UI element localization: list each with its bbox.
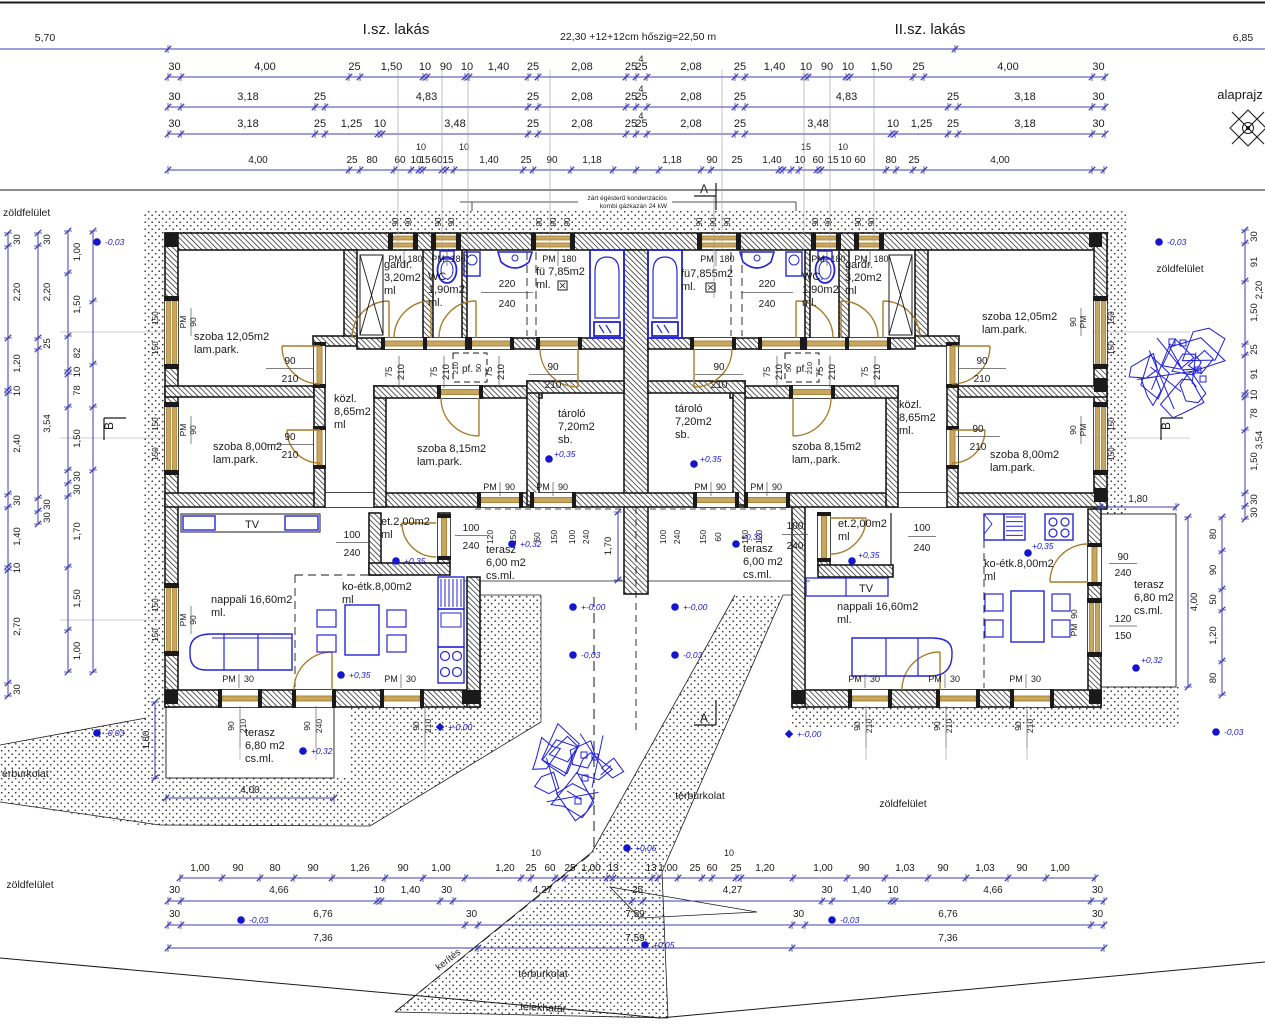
svg-text:60: 60: [713, 532, 723, 542]
svg-text:+0,35: +0,35: [858, 550, 880, 560]
svg-text:30: 30: [42, 499, 53, 510]
svg-text:180: 180: [719, 254, 734, 264]
svg-text:30: 30: [870, 674, 880, 684]
svg-text:25: 25: [42, 338, 53, 349]
svg-text:25: 25: [1249, 344, 1260, 355]
svg-text:30: 30: [12, 495, 23, 506]
svg-text:4,83: 4,83: [416, 91, 437, 103]
svg-text:90: 90: [434, 217, 443, 226]
svg-text:szoba 8,00m2: szoba 8,00m2: [213, 441, 282, 453]
svg-text:25: 25: [527, 61, 539, 73]
svg-text:4,27: 4,27: [533, 885, 553, 896]
svg-text:1,70: 1,70: [603, 537, 614, 556]
svg-text:25: 25: [730, 863, 742, 874]
svg-text:1,50: 1,50: [1249, 303, 1260, 322]
svg-text:1,00: 1,00: [190, 863, 210, 874]
svg-text:WC.: WC.: [802, 271, 823, 283]
svg-text:25: 25: [734, 91, 746, 103]
svg-text:4,00: 4,00: [997, 61, 1018, 73]
svg-text:zöldfelület: zöldfelület: [879, 798, 926, 810]
svg-text:90: 90: [1117, 552, 1129, 563]
svg-text:90: 90: [821, 61, 833, 73]
svg-text:-0,03: -0,03: [840, 915, 860, 925]
svg-text:I.sz. lakás: I.sz. lakás: [363, 21, 430, 38]
svg-text:ml: ml: [845, 285, 857, 297]
svg-text:cs.ml.: cs.ml.: [1134, 605, 1163, 617]
svg-text:PM: PM: [542, 254, 556, 264]
svg-text:13: 13: [645, 863, 657, 874]
svg-text:15: 15: [827, 155, 839, 166]
svg-text:100: 100: [567, 530, 577, 544]
svg-text:25: 25: [947, 91, 959, 103]
svg-text:ml: ml: [334, 419, 346, 431]
svg-text:ko-étk.8,00m2: ko-étk.8,00m2: [342, 581, 412, 593]
svg-text:10: 10: [12, 563, 23, 574]
svg-text:240: 240: [787, 541, 804, 552]
svg-text:ml.: ml.: [802, 297, 817, 309]
svg-text:75: 75: [815, 367, 826, 378]
svg-text:30: 30: [42, 234, 53, 245]
svg-text:90: 90: [226, 721, 236, 731]
svg-text:90: 90: [972, 424, 984, 435]
svg-text:90: 90: [824, 217, 833, 226]
svg-text:+0,05: +0,05: [635, 843, 657, 853]
svg-text:25: 25: [527, 118, 539, 130]
svg-text:PM: PM: [1009, 674, 1023, 684]
svg-text:2,20: 2,20: [12, 283, 23, 302]
svg-text:1,20: 1,20: [12, 354, 23, 373]
svg-text:30: 30: [821, 885, 833, 896]
svg-text:90: 90: [858, 863, 870, 874]
svg-text:90: 90: [549, 217, 558, 226]
svg-text:210: 210: [864, 719, 874, 733]
svg-text:25: 25: [912, 61, 924, 73]
svg-text:1,40: 1,40: [12, 527, 23, 546]
svg-text:+-0,00: +-0,00: [797, 729, 822, 739]
svg-text:1,00: 1,00: [581, 863, 601, 874]
svg-text:210: 210: [974, 374, 991, 385]
svg-text:tároló: tároló: [558, 408, 586, 420]
svg-text:30: 30: [42, 512, 53, 523]
svg-text:cs.ml.: cs.ml.: [486, 570, 515, 582]
svg-text:1,00: 1,00: [658, 863, 678, 874]
svg-text:+-0,00: +-0,00: [581, 602, 606, 612]
svg-text:90: 90: [391, 217, 400, 226]
svg-text:A: A: [700, 711, 708, 725]
svg-text:60: 60: [431, 155, 443, 166]
svg-text:lam.park.: lam.park.: [990, 462, 1035, 474]
svg-text:PM: PM: [483, 482, 497, 492]
svg-text:1,50: 1,50: [72, 295, 83, 314]
svg-text:10: 10: [887, 118, 899, 130]
svg-text:szoba 12,05m2: szoba 12,05m2: [194, 331, 269, 343]
svg-text:240: 240: [499, 299, 516, 310]
svg-text:4,66: 4,66: [269, 885, 289, 896]
svg-text:et.2,00m2: et.2,00m2: [381, 516, 430, 528]
svg-text:100: 100: [658, 530, 668, 544]
svg-text:+-0,00: +-0,00: [448, 722, 473, 732]
svg-text:1,40: 1,40: [479, 155, 499, 166]
svg-text:1,90m2: 1,90m2: [428, 284, 465, 296]
svg-text:90: 90: [546, 155, 558, 166]
svg-text:2,08: 2,08: [571, 118, 592, 130]
svg-text:25: 25: [314, 91, 326, 103]
svg-text:terasz: terasz: [1134, 579, 1164, 591]
svg-text:25: 25: [632, 885, 644, 896]
svg-text:2,40: 2,40: [12, 434, 23, 453]
svg-text:közl.: közl.: [334, 393, 357, 405]
svg-text:fü 7,85m2: fü 7,85m2: [536, 266, 585, 278]
svg-text:180: 180: [450, 254, 465, 264]
svg-text:240: 240: [463, 541, 480, 552]
svg-text:10: 10: [419, 61, 431, 73]
svg-text:90: 90: [932, 721, 942, 731]
svg-text:1,20: 1,20: [1208, 626, 1219, 645]
svg-text:1,50: 1,50: [381, 61, 402, 73]
svg-text:90: 90: [1068, 425, 1078, 435]
svg-text:120: 120: [485, 530, 495, 544]
svg-text:90: 90: [188, 425, 198, 435]
svg-text:3,20m2: 3,20m2: [384, 272, 421, 284]
svg-text:1,40: 1,40: [488, 61, 509, 73]
svg-text:ml.: ml.: [837, 614, 852, 626]
svg-text:78: 78: [1249, 408, 1260, 419]
svg-text:90: 90: [535, 217, 544, 226]
svg-text:6,85: 6,85: [1233, 32, 1254, 44]
svg-text:PM: PM: [848, 674, 862, 684]
svg-text:150: 150: [151, 341, 160, 355]
svg-text:ml.: ml.: [536, 279, 551, 291]
svg-text:et.2,00m2: et.2,00m2: [838, 518, 887, 530]
svg-text:30: 30: [169, 885, 181, 896]
svg-text:4,00: 4,00: [254, 61, 275, 73]
svg-text:90: 90: [772, 482, 782, 492]
svg-text:szoba 8,00m2: szoba 8,00m2: [990, 449, 1059, 461]
svg-text:-0,03: -0,03: [581, 650, 601, 660]
svg-text:lam.park.: lam.park.: [982, 324, 1027, 336]
svg-text:lam.park.: lam.park.: [194, 344, 239, 356]
svg-text:4,00: 4,00: [1189, 593, 1200, 612]
svg-text:3,20m2: 3,20m2: [845, 272, 882, 284]
svg-text:25: 25: [520, 155, 532, 166]
svg-text:2,08: 2,08: [680, 118, 701, 130]
svg-text:90: 90: [307, 863, 319, 874]
svg-text:210: 210: [1025, 719, 1035, 733]
svg-text:30: 30: [1249, 507, 1260, 518]
svg-text:210: 210: [944, 719, 954, 733]
svg-text:8,65m2: 8,65m2: [334, 406, 371, 418]
svg-text:90: 90: [867, 217, 876, 226]
svg-text:-0,03: -0,03: [1167, 237, 1187, 247]
svg-text:50: 50: [474, 364, 483, 372]
svg-text:4: 4: [638, 84, 643, 94]
svg-text:7,20m2: 7,20m2: [558, 421, 595, 433]
svg-text:7,59: 7,59: [625, 933, 645, 944]
svg-text:90: 90: [852, 721, 862, 731]
svg-text:térburkolat: térburkolat: [518, 968, 568, 980]
svg-text:210: 210: [545, 380, 562, 391]
svg-text:sb.: sb.: [675, 429, 690, 441]
svg-text:90: 90: [284, 356, 296, 367]
svg-text:sb.: sb.: [558, 434, 573, 446]
svg-text:150: 150: [151, 447, 160, 461]
svg-text:30: 30: [793, 909, 805, 920]
svg-text:10: 10: [374, 118, 386, 130]
svg-text:60: 60: [812, 155, 824, 166]
svg-text:100: 100: [787, 521, 804, 532]
svg-text:WC.: WC.: [428, 271, 449, 283]
svg-text:1,40: 1,40: [764, 61, 785, 73]
svg-text:30: 30: [1249, 494, 1260, 505]
svg-text:nappali 16,60m2: nappali 16,60m2: [837, 601, 918, 613]
svg-text:6,00 m2: 6,00 m2: [486, 557, 526, 569]
svg-text:2,70: 2,70: [12, 617, 23, 636]
svg-text:60: 60: [854, 155, 866, 166]
svg-text:1,80: 1,80: [1128, 494, 1148, 505]
svg-text:210: 210: [238, 719, 248, 733]
svg-text:220: 220: [499, 279, 516, 290]
svg-text:180: 180: [873, 254, 888, 264]
svg-text:10: 10: [887, 885, 899, 896]
svg-text:240: 240: [581, 530, 591, 544]
svg-text:30: 30: [1031, 674, 1041, 684]
svg-text:25: 25: [314, 118, 326, 130]
svg-text:3,48: 3,48: [807, 118, 828, 130]
svg-text:fü7,855m2: fü7,855m2: [681, 268, 733, 280]
svg-text:zöldfelület: zöldfelület: [6, 879, 53, 891]
svg-text:30: 30: [72, 484, 83, 495]
svg-text:100: 100: [914, 523, 931, 534]
svg-text:25: 25: [734, 118, 746, 130]
svg-text:PM: PM: [1078, 424, 1088, 437]
svg-text:10: 10: [459, 142, 469, 152]
svg-text:ko-étk.8,00m2: ko-étk.8,00m2: [984, 558, 1054, 570]
svg-text:1,40: 1,40: [401, 885, 421, 896]
svg-text:ml: ml: [342, 594, 354, 606]
svg-text:+0,35: +0,35: [700, 454, 722, 464]
svg-text:PM: PM: [178, 316, 188, 329]
svg-text:150: 150: [1115, 631, 1132, 642]
svg-text:PM: PM: [694, 482, 708, 492]
svg-text:210: 210: [496, 364, 507, 380]
svg-text:240: 240: [759, 299, 776, 310]
svg-text:210: 210: [827, 364, 838, 380]
svg-text:90: 90: [397, 863, 409, 874]
svg-text:90: 90: [284, 432, 296, 443]
svg-text:közl.: közl.: [899, 399, 922, 411]
svg-text:nappali 16,60m2: nappali 16,60m2: [211, 594, 292, 606]
svg-text:150: 150: [1107, 341, 1116, 355]
svg-text:80: 80: [885, 155, 897, 166]
svg-text:10: 10: [12, 386, 23, 397]
svg-text:3,54: 3,54: [42, 414, 53, 433]
svg-text:3,18: 3,18: [237, 91, 258, 103]
svg-text:10: 10: [531, 848, 541, 858]
svg-text:78: 78: [72, 385, 83, 396]
svg-text:30: 30: [1092, 909, 1104, 920]
svg-text:90: 90: [1208, 565, 1219, 576]
svg-text:4,00: 4,00: [240, 785, 260, 796]
svg-text:1,25: 1,25: [911, 118, 932, 130]
svg-text:75: 75: [429, 367, 440, 378]
svg-text:zöldfelület: zöldfelület: [1156, 263, 1203, 275]
svg-text:90: 90: [232, 863, 244, 874]
svg-text:4,83: 4,83: [836, 91, 857, 103]
svg-text:25: 25: [731, 155, 743, 166]
svg-text:lam.park.: lam.park.: [417, 456, 462, 468]
svg-text:ml: ml: [984, 571, 996, 583]
svg-text:210: 210: [451, 362, 460, 375]
svg-text:8,65m2: 8,65m2: [899, 412, 936, 424]
svg-text:ml.: ml.: [428, 297, 443, 309]
svg-text:15: 15: [419, 155, 431, 166]
svg-text:13: 13: [607, 863, 619, 874]
svg-text:PM: PM: [536, 482, 550, 492]
svg-text:3,18: 3,18: [1014, 91, 1035, 103]
svg-text:10: 10: [842, 61, 854, 73]
svg-text:ml.: ml.: [211, 607, 226, 619]
svg-text:zöldfelület: zöldfelület: [3, 207, 50, 219]
svg-text:80: 80: [1208, 529, 1219, 540]
svg-text:1,50: 1,50: [72, 429, 83, 448]
svg-text:7,59: 7,59: [625, 909, 645, 920]
svg-text:75: 75: [860, 367, 871, 378]
svg-text:PM: PM: [384, 674, 398, 684]
svg-text:90: 90: [976, 356, 988, 367]
svg-text:25: 25: [564, 863, 576, 874]
svg-text:10: 10: [416, 142, 426, 152]
svg-text:100: 100: [463, 523, 480, 534]
svg-text:90: 90: [716, 482, 726, 492]
svg-text:1,25: 1,25: [341, 118, 362, 130]
svg-text:90: 90: [302, 721, 312, 731]
svg-text:2,20: 2,20: [1254, 281, 1265, 300]
svg-text:PM: PM: [700, 254, 714, 264]
svg-text:91: 91: [1249, 257, 1260, 268]
svg-text:-0,03: -0,03: [683, 650, 703, 660]
svg-text:120: 120: [1115, 614, 1132, 625]
svg-text:PM: PM: [178, 424, 188, 437]
svg-text:25: 25: [527, 91, 539, 103]
svg-text:6,00 m2: 6,00 m2: [743, 556, 783, 568]
svg-text:6,76: 6,76: [938, 909, 958, 920]
svg-text:30: 30: [1092, 885, 1104, 896]
svg-text:60: 60: [394, 155, 406, 166]
svg-text:90: 90: [411, 721, 421, 731]
svg-text:240: 240: [672, 530, 682, 544]
svg-text:4: 4: [638, 111, 643, 121]
svg-text:PM: PM: [928, 674, 942, 684]
svg-text:+0,35: +0,35: [349, 670, 371, 680]
svg-text:II.sz. lakás: II.sz. lakás: [895, 21, 966, 38]
svg-text:1,18: 1,18: [582, 155, 602, 166]
svg-text:90: 90: [188, 317, 198, 327]
svg-text:210: 210: [282, 450, 299, 461]
svg-text:1,70: 1,70: [72, 522, 83, 541]
svg-text:30: 30: [169, 909, 181, 920]
svg-text:30: 30: [12, 234, 23, 245]
svg-text:tároló: tároló: [675, 403, 703, 415]
svg-text:1,20: 1,20: [755, 863, 775, 874]
svg-text:+0,32: +0,32: [311, 746, 333, 756]
svg-text:1,00: 1,00: [72, 642, 83, 661]
svg-text:terasz: terasz: [245, 727, 275, 739]
svg-text:150: 150: [151, 598, 160, 612]
svg-text:ml: ml: [838, 531, 850, 543]
svg-text:lam.park.: lam.park.: [213, 454, 258, 466]
svg-text:90: 90: [854, 217, 863, 226]
svg-text:2,08: 2,08: [571, 91, 592, 103]
svg-text:90: 90: [811, 217, 820, 226]
svg-text:25: 25: [734, 61, 746, 73]
svg-text:80: 80: [366, 155, 378, 166]
svg-text:TV: TV: [245, 519, 260, 531]
svg-text:90: 90: [447, 217, 456, 226]
svg-text:5,70: 5,70: [35, 32, 56, 44]
svg-text:1,18: 1,18: [662, 155, 682, 166]
svg-text:telekhatár: telekhatár: [520, 1001, 567, 1015]
svg-text:80: 80: [1208, 673, 1219, 684]
svg-text:PM: PM: [431, 254, 445, 264]
svg-text:150: 150: [1107, 311, 1116, 325]
svg-text:150: 150: [151, 311, 160, 325]
svg-text:25: 25: [947, 118, 959, 130]
svg-text:1,80: 1,80: [141, 731, 152, 750]
svg-text:240: 240: [314, 719, 324, 733]
svg-text:25: 25: [348, 61, 360, 73]
svg-text:75: 75: [384, 367, 395, 378]
svg-text:PM: PM: [1078, 316, 1088, 329]
svg-text:30: 30: [168, 91, 180, 103]
svg-text:kombi gázkazán 24 kW: kombi gázkazán 24 kW: [600, 203, 668, 210]
svg-text:PM: PM: [854, 254, 868, 264]
svg-text:1,00: 1,00: [72, 243, 83, 262]
svg-text:2,08: 2,08: [680, 61, 701, 73]
svg-text:10: 10: [72, 367, 83, 378]
svg-text:PM: PM: [1069, 624, 1079, 637]
svg-text:10: 10: [838, 142, 848, 152]
svg-text:150: 150: [549, 530, 559, 544]
svg-text:lam,.park.: lam,.park.: [792, 454, 840, 466]
svg-text:PM: PM: [222, 674, 236, 684]
svg-text:90: 90: [709, 217, 718, 226]
svg-text:6,76: 6,76: [313, 909, 333, 920]
svg-text:210: 210: [282, 374, 299, 385]
svg-text:TV: TV: [859, 583, 874, 595]
svg-text:90: 90: [404, 217, 413, 226]
svg-text:82: 82: [72, 348, 83, 359]
svg-text:+-0,00: +-0,00: [683, 602, 708, 612]
svg-text:15: 15: [801, 142, 811, 152]
svg-text:25: 25: [346, 155, 358, 166]
svg-text:ml: ml: [381, 529, 393, 541]
svg-text:-0,03: -0,03: [1224, 727, 1244, 737]
svg-text:60: 60: [706, 863, 718, 874]
svg-text:240: 240: [1115, 568, 1132, 579]
svg-text:30: 30: [406, 674, 416, 684]
svg-text:4: 4: [638, 54, 643, 64]
svg-text:4,66: 4,66: [983, 885, 1003, 896]
svg-text:90: 90: [1016, 863, 1028, 874]
svg-text:2,08: 2,08: [571, 61, 592, 73]
svg-text:szoba 12,05m2: szoba 12,05m2: [982, 311, 1057, 323]
svg-text:30: 30: [72, 471, 83, 482]
svg-text:90: 90: [558, 482, 568, 492]
svg-text:1,00: 1,00: [813, 863, 833, 874]
svg-text:91: 91: [1249, 369, 1260, 380]
svg-text:+0,32: +0,32: [741, 532, 763, 542]
svg-text:10: 10: [373, 885, 385, 896]
